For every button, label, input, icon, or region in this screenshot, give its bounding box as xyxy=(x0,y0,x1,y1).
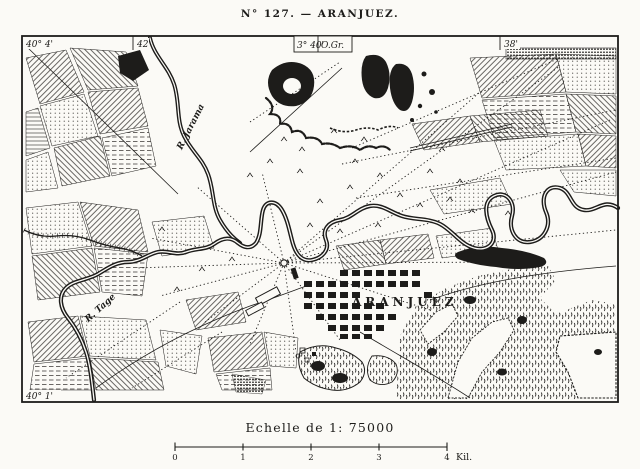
lon-greenwich-ref: O.Gr. xyxy=(321,41,344,51)
ontigola-pond xyxy=(455,247,546,269)
fields-northwest xyxy=(26,48,156,192)
woods-north xyxy=(266,55,438,150)
fields-south-center xyxy=(208,332,298,394)
scale-caption: Echelle de 1: 75000 xyxy=(245,420,394,435)
town-label: ARANJUEZ xyxy=(351,295,458,309)
scale-tick-2: 2 xyxy=(308,453,313,463)
engraved-map: N° 127. — ARANJUEZ. xyxy=(0,0,640,469)
avenue-star-hub xyxy=(281,260,287,266)
lon-center: 3° 40' xyxy=(297,41,324,51)
lat-bottom-left: 40° 1' xyxy=(25,392,53,402)
scale-group: Echelle de 1: 75000 0 1 2 3 4 Kil. xyxy=(172,420,472,463)
scale-tick-1: 1 xyxy=(240,453,245,463)
hills-southeast xyxy=(396,266,616,400)
lat-top-left: 40° 4' xyxy=(25,40,53,50)
lon-tick-38: 38' xyxy=(504,40,518,50)
river-jarama-course xyxy=(150,38,240,243)
map-title: N° 127. — ARANJUEZ. xyxy=(241,8,399,20)
scale-tick-3: 3 xyxy=(376,453,381,463)
scale-tick-4: 4 xyxy=(444,453,449,463)
map-sheet: N° 127. — ARANJUEZ. xyxy=(0,0,640,469)
fields-northeast xyxy=(412,48,616,196)
lon-tick-42: 42 xyxy=(136,40,149,50)
scale-unit: Kil. xyxy=(456,452,472,463)
scale-tick-0: 0 xyxy=(172,453,177,463)
scale-bar xyxy=(175,443,447,452)
